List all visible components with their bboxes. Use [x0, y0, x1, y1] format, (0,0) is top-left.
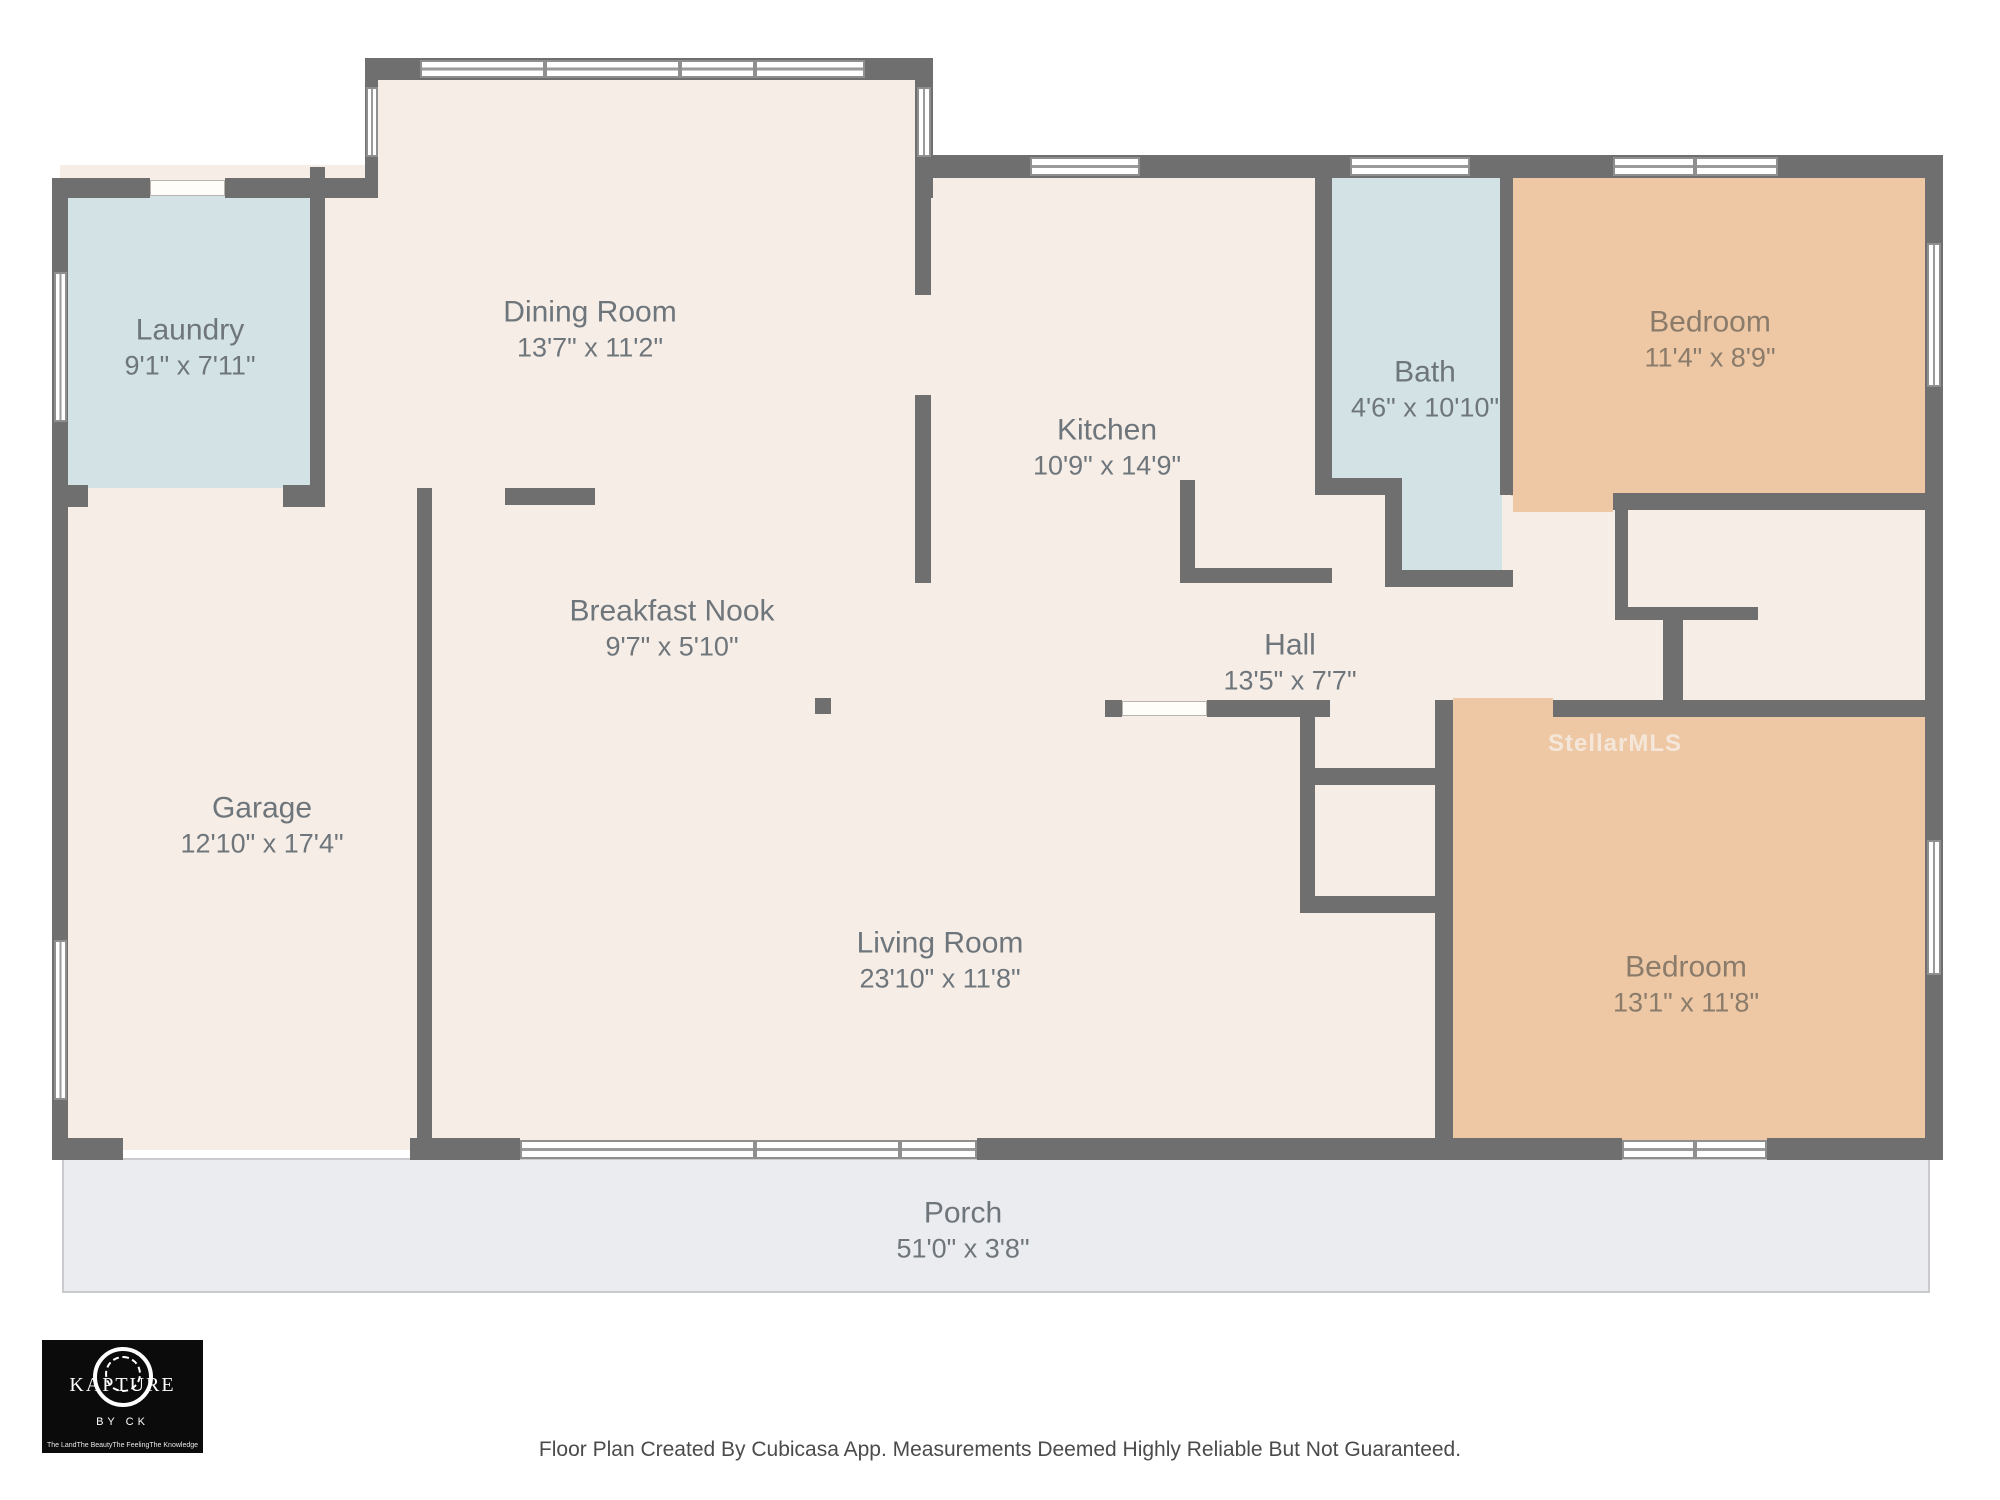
- room-dims: 10'9" x 14'9": [1033, 449, 1181, 483]
- room-dims: 13'1" x 11'8": [1613, 986, 1759, 1020]
- wall: [815, 698, 831, 714]
- floor-bedroom-bottom-doorway: [1453, 698, 1553, 717]
- room-label-porch: Porch 51'0" x 3'8": [896, 1194, 1029, 1265]
- logo-sub-text: BY CK: [42, 1416, 203, 1428]
- room-dims: 4'6" x 10'10": [1351, 391, 1499, 425]
- wall: [977, 1138, 1622, 1160]
- room-dims: 9'7" x 5'10": [569, 630, 774, 664]
- wall: [283, 485, 325, 507]
- wall: [52, 1138, 123, 1160]
- wall: [1300, 896, 1435, 913]
- room-dims: 23'10" x 11'8": [857, 962, 1024, 996]
- window: [900, 1140, 977, 1159]
- room-label-garage: Garage 12'10" x 17'4": [180, 789, 343, 860]
- room-label-dining: Dining Room 13'7" x 11'2": [503, 293, 676, 364]
- wall: [417, 488, 432, 1160]
- room-label-bath: Bath 4'6" x 10'10": [1351, 353, 1499, 424]
- room-label-living: Living Room 23'10" x 11'8": [857, 924, 1024, 995]
- window: [1622, 1140, 1695, 1159]
- logo-brand-text: KAPTURE: [42, 1374, 203, 1397]
- wall: [1315, 175, 1332, 495]
- room-name: Breakfast Nook: [569, 592, 774, 630]
- room-label-kitchen: Kitchen 10'9" x 14'9": [1033, 411, 1181, 482]
- wall: [505, 488, 595, 505]
- wall: [52, 178, 150, 198]
- wall: [1207, 700, 1330, 717]
- wall: [310, 167, 325, 507]
- door-opening: [150, 180, 225, 196]
- floor-bath-notch: [1315, 493, 1387, 573]
- wall: [225, 178, 378, 198]
- wall: [1180, 568, 1332, 583]
- wall: [1435, 700, 1453, 1138]
- wall: [52, 485, 88, 507]
- room-name: Hall: [1223, 626, 1356, 664]
- watermark: StellarMLS: [1548, 730, 1682, 758]
- logo-tagline: The Land: [47, 1442, 77, 1449]
- wall: [1663, 620, 1683, 700]
- room-dims: 12'10" x 17'4": [180, 827, 343, 861]
- wall: [1767, 1138, 1943, 1160]
- room-name: Dining Room: [503, 293, 676, 331]
- window: [1927, 840, 1941, 975]
- window: [755, 1140, 900, 1159]
- room-dims: 11'4" x 8'9": [1644, 341, 1775, 375]
- room-name: Bedroom: [1644, 303, 1775, 341]
- floor-plan: Laundry 9'1" x 7'11" Dining Room 13'7" x…: [0, 0, 2000, 1500]
- room-dims: 51'0" x 3'8": [896, 1232, 1029, 1266]
- room-name: Bath: [1351, 353, 1499, 391]
- wall: [1105, 700, 1122, 717]
- wall: [1500, 175, 1513, 495]
- room-label-bedroom-top: Bedroom 11'4" x 8'9": [1644, 303, 1775, 374]
- window: [54, 940, 67, 1100]
- wall: [1613, 493, 1925, 510]
- wall: [1385, 570, 1513, 587]
- wall: [915, 175, 931, 295]
- window: [366, 87, 378, 157]
- wall: [1180, 480, 1195, 575]
- room-label-breakfast-nook: Breakfast Nook 9'7" x 5'10": [569, 592, 774, 663]
- window: [1695, 1140, 1767, 1159]
- room-label-bedroom-bottom: Bedroom 13'1" x 11'8": [1613, 948, 1759, 1019]
- kapture-logo: KAPTURE BY CK The Land The Beauty The Fe…: [42, 1340, 203, 1453]
- window: [680, 60, 755, 78]
- room-name: Garage: [180, 789, 343, 827]
- window: [520, 1140, 755, 1159]
- floor-bedroom-bottom: [1451, 715, 1927, 1140]
- door-opening: [1122, 701, 1207, 716]
- window: [1695, 157, 1778, 176]
- window: [1927, 243, 1941, 387]
- footer-disclaimer: Floor Plan Created By Cubicasa App. Meas…: [539, 1438, 1461, 1462]
- room-name: Living Room: [857, 924, 1024, 962]
- room-name: Porch: [896, 1194, 1029, 1232]
- window: [1613, 157, 1695, 176]
- room-dims: 13'7" x 11'2": [503, 331, 676, 365]
- wall: [915, 395, 931, 583]
- logo-taglines: The Land The Beauty The Feeling The Know…: [42, 1442, 203, 1449]
- window: [1350, 157, 1470, 176]
- room-name: Bedroom: [1613, 948, 1759, 986]
- logo-tagline: The Knowledge: [149, 1442, 198, 1449]
- logo-tagline: The Feeling: [112, 1442, 149, 1449]
- wall: [1615, 510, 1628, 620]
- window: [917, 87, 931, 157]
- window: [54, 272, 67, 422]
- room-dims: 9'1" x 7'11": [124, 349, 255, 383]
- wall: [1315, 478, 1402, 495]
- floor-bedroom-top-doorway: [1513, 493, 1613, 512]
- room-label-laundry: Laundry 9'1" x 7'11": [124, 311, 255, 382]
- window: [420, 60, 545, 78]
- wall: [1300, 717, 1315, 913]
- window: [545, 60, 680, 78]
- room-name: Kitchen: [1033, 411, 1181, 449]
- window: [1030, 157, 1140, 176]
- room-dims: 13'5" x 7'7": [1223, 664, 1356, 698]
- wall: [1385, 495, 1402, 573]
- wall: [1615, 607, 1758, 620]
- window: [755, 60, 865, 78]
- wall: [1553, 700, 1925, 717]
- logo-tagline: The Beauty: [77, 1442, 113, 1449]
- wall: [1300, 768, 1435, 785]
- room-label-hall: Hall 13'5" x 7'7": [1223, 626, 1356, 697]
- floor-dining-bump: [370, 65, 928, 200]
- room-name: Laundry: [124, 311, 255, 349]
